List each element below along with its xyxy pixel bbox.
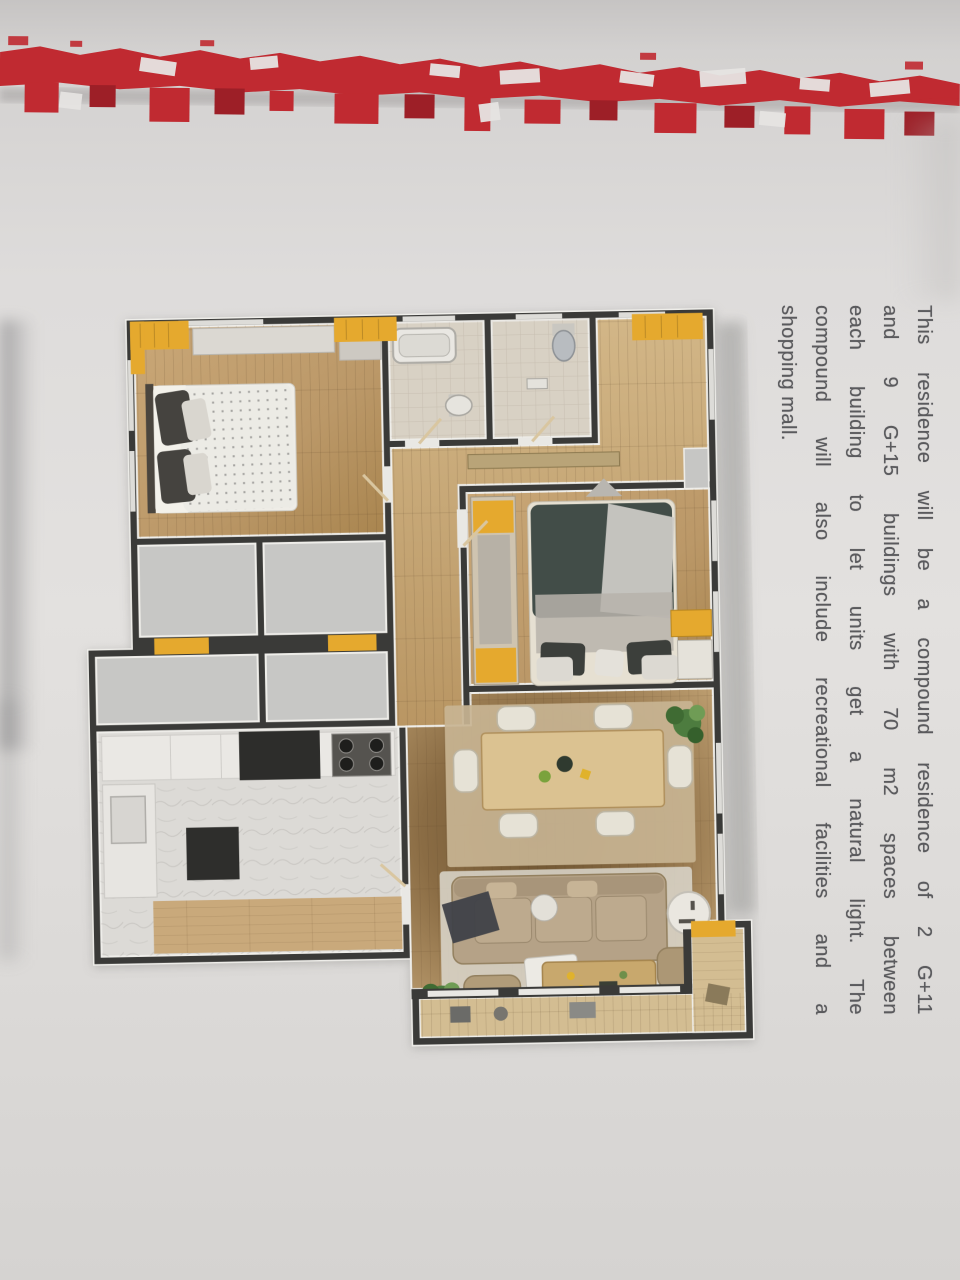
wardrobe (471, 496, 519, 685)
photo-shadow-left-lower (0, 700, 26, 960)
toilet (552, 323, 575, 361)
tray (531, 894, 558, 921)
kitchen (97, 727, 402, 957)
living-dining-room (406, 688, 719, 1019)
bathtub (393, 328, 456, 364)
stove (239, 730, 321, 780)
double-bed (527, 477, 678, 686)
double-bed (145, 381, 297, 513)
marketing-paragraph: This residence will be a compound reside… (763, 305, 941, 1015)
paragraph-line: each building to let units get a natural… (839, 305, 873, 1015)
master-bedroom (466, 476, 712, 687)
paragraph-line: shopping mall. (771, 305, 805, 1015)
island-appliance (186, 827, 240, 881)
paragraph-line: compound will also include recreational … (805, 305, 839, 1015)
paragraph-line: This residence will be a compound reside… (907, 305, 941, 1015)
toilet (445, 394, 472, 417)
sink (111, 796, 146, 843)
balcony-item (450, 1006, 471, 1023)
apartment-floor-plan (80, 288, 763, 1109)
balcony-marker (691, 920, 736, 937)
bathroom-2 (492, 319, 591, 438)
console-shelf (468, 452, 620, 469)
balcony-item (569, 1002, 596, 1019)
dining-table (481, 730, 664, 810)
photo-shadow-left (0, 320, 34, 750)
photographed-brochure-page: This residence will be a compound reside… (0, 0, 960, 1280)
torn-notebook-edge (0, 0, 960, 150)
sink (527, 378, 547, 388)
paragraph-line: and 9 G+15 buildings with 70 m2 spaces b… (873, 305, 907, 1015)
sofa (441, 873, 667, 964)
gas-hob (332, 733, 391, 777)
bedroom-1 (134, 323, 384, 538)
